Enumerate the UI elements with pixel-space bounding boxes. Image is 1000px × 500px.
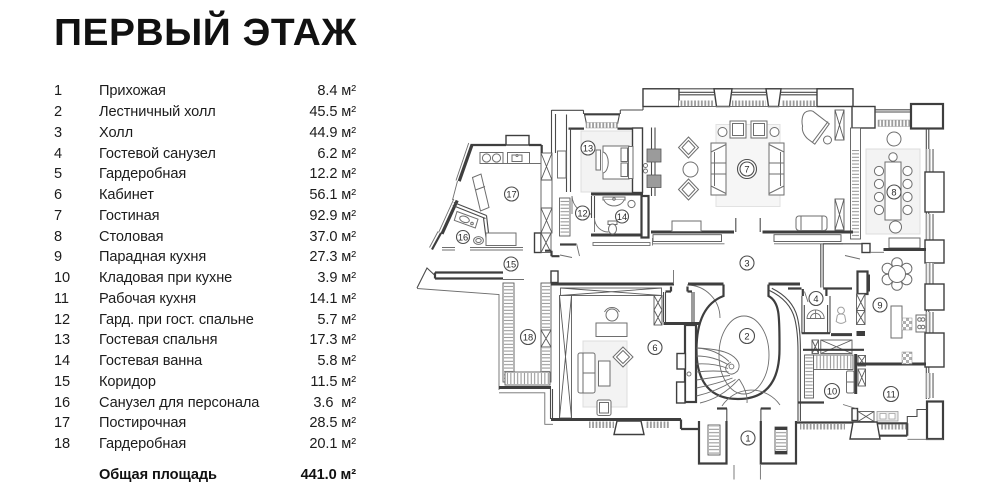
svg-text:2: 2 <box>744 332 749 342</box>
svg-text:14: 14 <box>617 212 627 222</box>
svg-text:1: 1 <box>745 434 750 444</box>
svg-text:4: 4 <box>813 294 818 304</box>
svg-text:11: 11 <box>886 390 896 400</box>
svg-text:16: 16 <box>458 233 468 243</box>
svg-text:10: 10 <box>827 387 837 397</box>
svg-text:18: 18 <box>523 333 533 343</box>
svg-text:8: 8 <box>891 188 896 198</box>
svg-text:6: 6 <box>652 343 657 353</box>
svg-text:13: 13 <box>583 144 593 154</box>
svg-text:3: 3 <box>744 259 749 269</box>
svg-text:15: 15 <box>506 260 516 270</box>
svg-text:17: 17 <box>506 190 516 200</box>
svg-text:12: 12 <box>577 209 587 219</box>
svg-text:7: 7 <box>744 165 749 175</box>
svg-text:9: 9 <box>877 301 882 311</box>
